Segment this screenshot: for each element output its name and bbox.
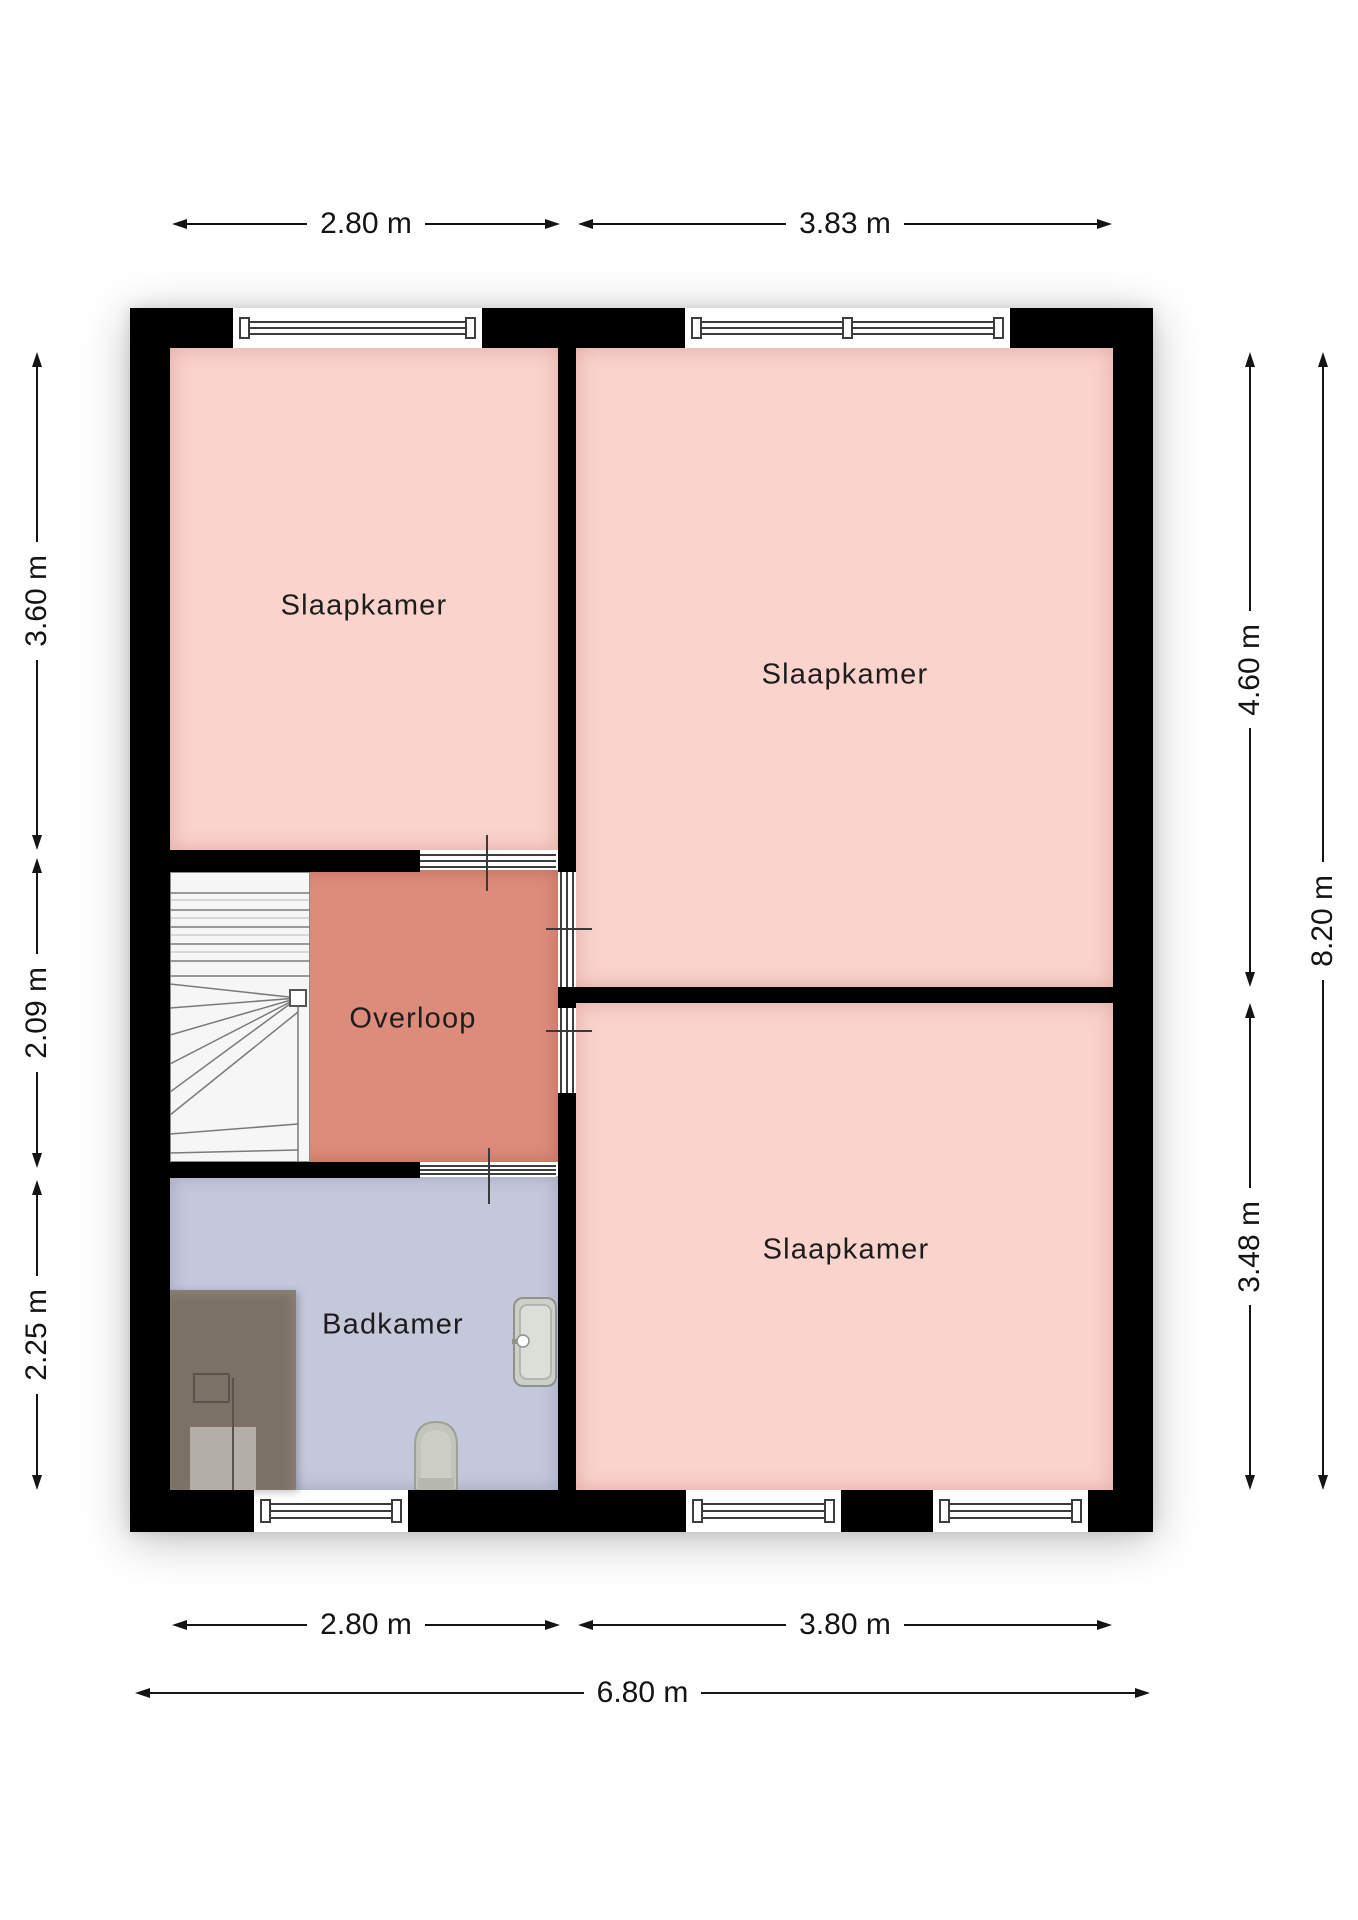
window-bedroom-bottom-2 <box>933 1490 1088 1532</box>
room-label-bathroom: Badkamer <box>322 1309 464 1342</box>
room-label-landing: Overloop <box>349 1003 476 1036</box>
window-frame-post <box>842 317 853 339</box>
dimension-left-2: 2.09 m <box>20 858 54 1168</box>
window-frame-cap <box>465 317 476 339</box>
dimension-bottom-left: 2.80 m <box>172 1608 560 1642</box>
door-tick-mark <box>546 1030 592 1032</box>
arrow-down-icon <box>32 1153 42 1168</box>
arrow-right-icon <box>545 219 560 229</box>
arrow-up-icon <box>1245 1003 1255 1018</box>
dimension-label: 4.60 m <box>1233 611 1267 729</box>
arrow-left-icon <box>135 1688 150 1698</box>
room-label-bedroom-top-right: Slaapkamer <box>762 659 929 692</box>
dimension-right-1: 4.60 m <box>1233 352 1267 987</box>
arrow-down-icon <box>1245 1475 1255 1490</box>
dimension-bottom-right: 3.80 m <box>578 1608 1112 1642</box>
arrow-down-icon <box>32 835 42 850</box>
dimension-top-left: 2.80 m <box>172 207 560 241</box>
wall-left <box>130 308 170 1532</box>
arrow-left-icon <box>172 219 187 229</box>
window-bedroom-top-left <box>233 308 482 348</box>
wall-center-segment-3 <box>558 1093 576 1490</box>
dimension-left-1: 3.60 m <box>20 352 54 850</box>
arrow-right-icon <box>1097 219 1112 229</box>
window-bedroom-top-right <box>685 308 1010 348</box>
door-tick-mark <box>488 1148 490 1204</box>
window-frame-cap <box>993 317 1004 339</box>
wall-bottom-segment-1 <box>130 1490 254 1532</box>
wall-top-segment-3 <box>1010 308 1153 348</box>
arrow-down-icon <box>1318 1475 1328 1490</box>
arrow-right-icon <box>1097 1620 1112 1630</box>
window-frame-cap <box>260 1499 271 1523</box>
window-bedroom-bottom-1 <box>686 1490 841 1532</box>
dimension-label: 2.09 m <box>20 954 54 1072</box>
wall-center-segment-1 <box>558 348 576 872</box>
arrow-right-icon <box>545 1620 560 1630</box>
stairs <box>170 872 310 1162</box>
wardrobe <box>170 1290 296 1490</box>
dimension-top-right: 3.83 m <box>578 207 1112 241</box>
dimension-label: 3.60 m <box>20 542 54 660</box>
wall-between-right-bedrooms <box>576 987 1113 1003</box>
dimension-label: 8.20 m <box>1306 862 1340 980</box>
dimension-right-2: 3.48 m <box>1233 1003 1267 1490</box>
dimension-label: 3.48 m <box>1233 1188 1267 1306</box>
arrow-left-icon <box>172 1620 187 1630</box>
window-frame-cap <box>239 317 250 339</box>
wall-top-segment-1 <box>130 308 233 348</box>
wall-right <box>1113 308 1153 1532</box>
arrow-up-icon <box>1318 352 1328 367</box>
floorplan-canvas: Slaapkamer Slaapkamer Slaapkamer Overloo… <box>0 0 1358 1920</box>
room-label-bedroom-top-left: Slaapkamer <box>281 590 448 623</box>
window-bathroom <box>254 1490 408 1532</box>
door-glass <box>420 854 556 868</box>
window-frame-cap <box>692 1499 703 1523</box>
wall-center-segment-2 <box>558 987 576 1008</box>
window-frame-cap <box>939 1499 950 1523</box>
dimension-bottom-total: 6.80 m <box>135 1676 1150 1710</box>
arrow-up-icon <box>1245 352 1255 367</box>
wall-bottom-segment-3 <box>841 1490 933 1532</box>
toilet <box>410 1418 462 1490</box>
arrow-down-icon <box>32 1475 42 1490</box>
wall-bedroom1-landing <box>170 850 420 872</box>
arrow-up-icon <box>32 352 42 367</box>
dimension-label: 3.80 m <box>786 1608 904 1642</box>
arrow-up-icon <box>32 858 42 873</box>
wall-bottom-segment-2 <box>408 1490 686 1532</box>
arrow-left-icon <box>578 1620 593 1630</box>
window-glass <box>242 321 473 335</box>
arrow-right-icon <box>1135 1688 1150 1698</box>
door-tick-mark <box>546 928 592 930</box>
dimension-left-3: 2.25 m <box>20 1180 54 1490</box>
wall-top-segment-2 <box>482 308 685 348</box>
window-glass <box>263 1503 399 1519</box>
dimension-label: 2.25 m <box>20 1276 54 1394</box>
arrow-up-icon <box>32 1180 42 1195</box>
window-glass <box>695 1503 832 1519</box>
wardrobe-shelf <box>190 1427 256 1490</box>
floorplan: Slaapkamer Slaapkamer Slaapkamer Overloo… <box>130 308 1153 1532</box>
window-frame-cap <box>391 1499 402 1523</box>
dimension-right-total: 8.20 m <box>1306 352 1340 1490</box>
arrow-down-icon <box>1245 972 1255 987</box>
room-label-bedroom-bottom-right: Slaapkamer <box>763 1234 930 1267</box>
window-glass <box>942 1503 1079 1519</box>
wall-landing-bathroom <box>170 1162 420 1178</box>
window-frame-cap <box>1071 1499 1082 1523</box>
door-glass <box>560 1008 574 1093</box>
wardrobe-drawer <box>193 1373 230 1403</box>
dimension-label: 2.80 m <box>307 207 425 241</box>
dimension-label: 6.80 m <box>584 1676 702 1710</box>
dimension-label: 3.83 m <box>786 207 904 241</box>
dimension-label: 2.80 m <box>307 1608 425 1642</box>
arrow-left-icon <box>578 219 593 229</box>
window-frame-cap <box>824 1499 835 1523</box>
sink <box>512 1296 558 1388</box>
wardrobe-pole <box>232 1378 234 1490</box>
wall-bottom-segment-4 <box>1088 1490 1153 1532</box>
window-frame-cap <box>691 317 702 339</box>
door-bedroom-top-left <box>420 852 556 870</box>
door-tick-mark <box>486 835 488 891</box>
door-bedroom-bottom-right <box>558 1008 576 1093</box>
